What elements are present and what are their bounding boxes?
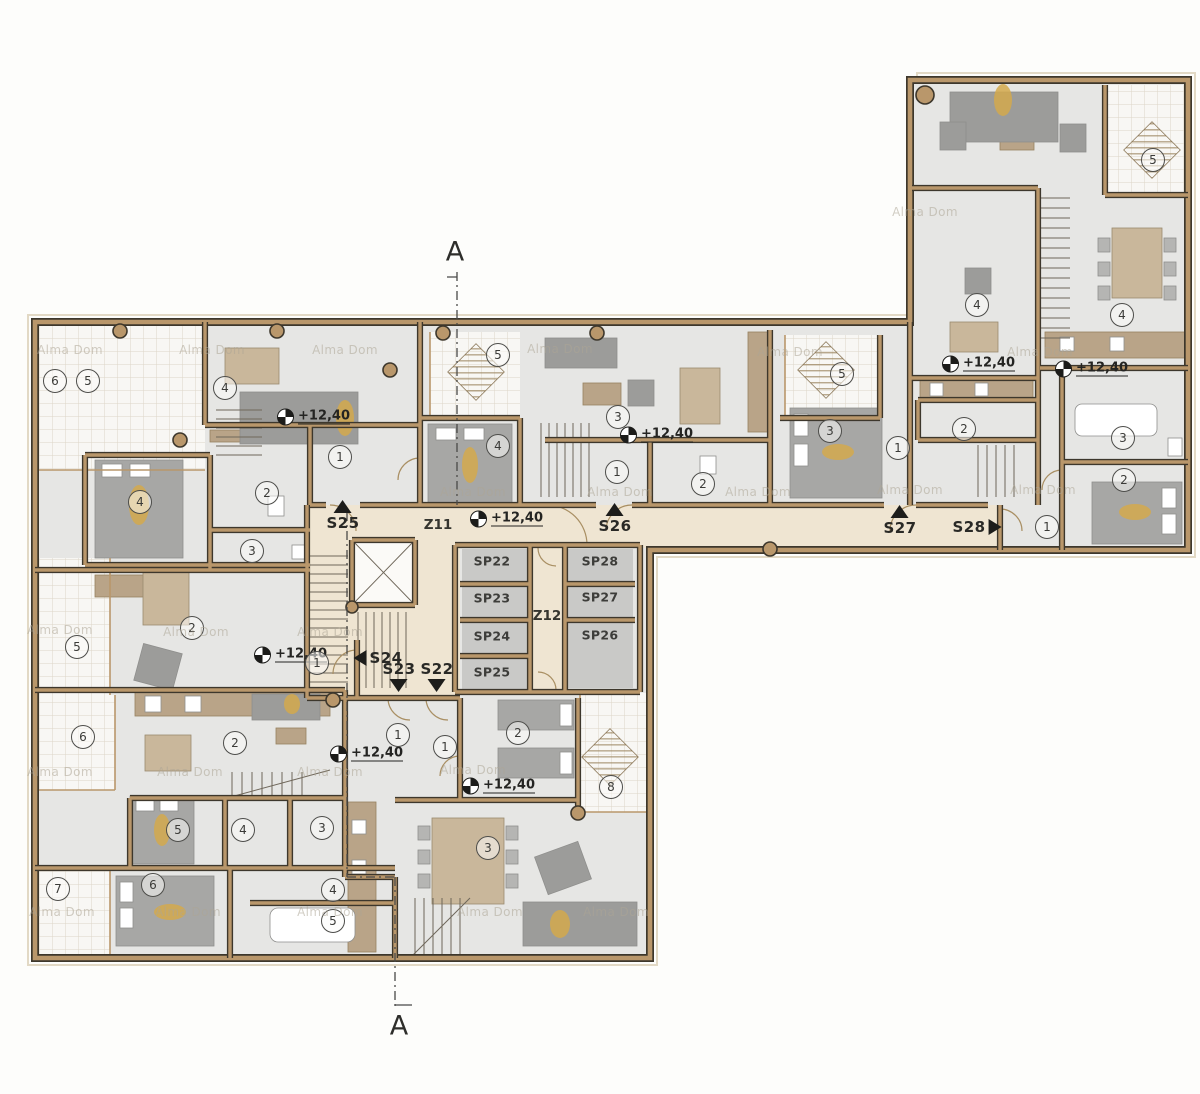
room-number-circle: 1 xyxy=(328,445,352,469)
room-number-circle: 1 xyxy=(1035,515,1059,539)
room-number-circle: 6 xyxy=(141,873,165,897)
elevation-marker: +12,40 xyxy=(462,778,535,795)
room-number-circle: 2 xyxy=(223,731,247,755)
watermark: Alma Dom xyxy=(27,623,93,637)
core-label-z12: Z12 xyxy=(533,608,562,624)
entrance-arrow-up-icon xyxy=(606,503,624,516)
entrance-arrow-down-icon xyxy=(428,679,446,692)
level-marker-icon xyxy=(277,409,294,426)
level-marker-icon xyxy=(942,356,959,373)
entrance-marker-s28: S28 xyxy=(953,518,1002,536)
room-number-circle: 4 xyxy=(231,818,255,842)
room-number-circle: 2 xyxy=(952,417,976,441)
room-number-circle: 3 xyxy=(818,419,842,443)
room-number-circle: 2 xyxy=(691,472,715,496)
elevation-value: +12,40 xyxy=(483,778,535,793)
room-number-circle: 4 xyxy=(128,490,152,514)
room-number-circle: 2 xyxy=(1112,468,1136,492)
elevation-marker: +12,40 xyxy=(330,746,403,763)
storage-label-sp27: SP27 xyxy=(582,590,619,605)
level-marker-icon xyxy=(254,647,271,664)
room-number-circle: 4 xyxy=(213,376,237,400)
watermark: Alma Dom xyxy=(527,342,593,356)
elevation-value: +12,40 xyxy=(491,511,543,526)
room-number-circle: 4 xyxy=(321,878,345,902)
room-number-circle: 4 xyxy=(486,434,510,458)
entrance-label: S27 xyxy=(884,519,917,537)
entrance-marker-s22: S22 xyxy=(421,660,454,692)
elevation-value: +12,40 xyxy=(351,746,403,761)
watermark: Alma Dom xyxy=(179,343,245,357)
entrance-label: S28 xyxy=(953,518,986,536)
entrance-label: S25 xyxy=(327,514,360,532)
elevation-marker: +12,40 xyxy=(942,356,1015,373)
entrance-label: S26 xyxy=(599,517,632,535)
entrance-marker-s26: S26 xyxy=(599,503,632,535)
watermark: Alma Dom xyxy=(297,905,363,919)
core-label-z11: Z11 xyxy=(424,517,453,533)
watermark: Alma Dom xyxy=(297,765,363,779)
watermark: Alma Dom xyxy=(1007,345,1073,359)
section-marker-bottom: A xyxy=(390,1011,408,1042)
entrance-label: S23 xyxy=(383,660,416,678)
room-number-circle: 1 xyxy=(886,436,910,460)
watermark: Alma Dom xyxy=(27,765,93,779)
level-marker-icon xyxy=(462,778,479,795)
storage-label-sp24: SP24 xyxy=(474,629,511,644)
entrance-label: S22 xyxy=(421,660,454,678)
room-number-circle: 3 xyxy=(1111,426,1135,450)
entrance-arrow-down-icon xyxy=(390,679,408,692)
room-number-circle: 1 xyxy=(433,735,457,759)
storage-label-sp23: SP23 xyxy=(474,591,511,606)
room-number-circle: 3 xyxy=(606,405,630,429)
room-number-circle: 4 xyxy=(1110,303,1134,327)
elevation-marker: +12,40 xyxy=(277,409,350,426)
watermark: Alma Dom xyxy=(757,345,823,359)
level-marker-icon xyxy=(330,746,347,763)
room-number-circle: 6 xyxy=(43,369,67,393)
watermark: Alma Dom xyxy=(892,205,958,219)
watermark: Alma Dom xyxy=(587,485,653,499)
entrance-arrow-up-icon xyxy=(334,500,352,513)
entrance-arrow-right-icon xyxy=(988,519,1001,535)
watermark: Alma Dom xyxy=(157,765,223,779)
section-marker-top: A xyxy=(446,237,464,268)
storage-label-sp26: SP26 xyxy=(582,628,619,643)
room-number-circle: 5 xyxy=(1141,148,1165,172)
watermark: Alma Dom xyxy=(725,485,791,499)
watermark: Alma Dom xyxy=(155,905,221,919)
level-marker-icon xyxy=(620,427,637,444)
room-number-circle: 1 xyxy=(386,723,410,747)
entrance-arrow-left-icon xyxy=(354,650,367,666)
elevation-value: +12,40 xyxy=(1076,361,1128,376)
level-marker-icon xyxy=(470,511,487,528)
room-number-circle: 8 xyxy=(599,775,623,799)
watermark: Alma Dom xyxy=(1010,483,1076,497)
room-number-circle: 5 xyxy=(65,635,89,659)
watermark: Alma Dom xyxy=(312,343,378,357)
storage-label-sp22: SP22 xyxy=(474,554,511,569)
watermark: Alma Dom xyxy=(457,905,523,919)
elevation-marker: +12,40 xyxy=(1055,361,1128,378)
room-number-circle: 5 xyxy=(76,369,100,393)
room-number-circle: 3 xyxy=(240,539,264,563)
room-number-circle: 4 xyxy=(965,293,989,317)
room-number-circle: 3 xyxy=(476,836,500,860)
entrance-marker-s27: S27 xyxy=(884,505,917,537)
storage-label-sp28: SP28 xyxy=(582,554,619,569)
elevation-value: +12,40 xyxy=(298,409,350,424)
room-number-circle: 2 xyxy=(506,721,530,745)
elevation-marker: +12,40 xyxy=(620,427,693,444)
watermark: Alma Dom xyxy=(297,625,363,639)
room-number-circle: 6 xyxy=(71,725,95,749)
room-number-circle: 1 xyxy=(305,651,329,675)
storage-label-sp25: SP25 xyxy=(474,665,511,680)
watermark: Alma Dom xyxy=(37,343,103,357)
room-number-circle: 7 xyxy=(46,877,70,901)
elevation-marker: +12,40 xyxy=(470,511,543,528)
room-number-circle: 3 xyxy=(310,816,334,840)
floor-plan-page: A A Z11 Z12 SP22 SP23 SP24 SP25 SP26 SP2… xyxy=(0,0,1200,1094)
watermark: Alma Dom xyxy=(877,483,943,497)
floor-plan-drawing xyxy=(0,0,1200,1094)
level-marker-icon xyxy=(1055,361,1072,378)
entrance-arrow-up-icon xyxy=(891,505,909,518)
watermark: Alma Dom xyxy=(29,905,95,919)
entrance-marker-s25: S25 xyxy=(327,500,360,532)
room-number-circle: 5 xyxy=(830,362,854,386)
entrance-marker-s23: S23 xyxy=(383,660,416,692)
watermark: Alma Dom xyxy=(163,625,229,639)
watermark: Alma Dom xyxy=(440,763,506,777)
room-number-circle: 5 xyxy=(166,818,190,842)
room-number-circle: 5 xyxy=(486,343,510,367)
elevation-value: +12,40 xyxy=(641,427,693,442)
room-number-circle: 1 xyxy=(605,460,629,484)
room-number-circle: 2 xyxy=(255,481,279,505)
watermark: Alma Dom xyxy=(583,905,649,919)
watermark: Alma Dom xyxy=(440,485,506,499)
